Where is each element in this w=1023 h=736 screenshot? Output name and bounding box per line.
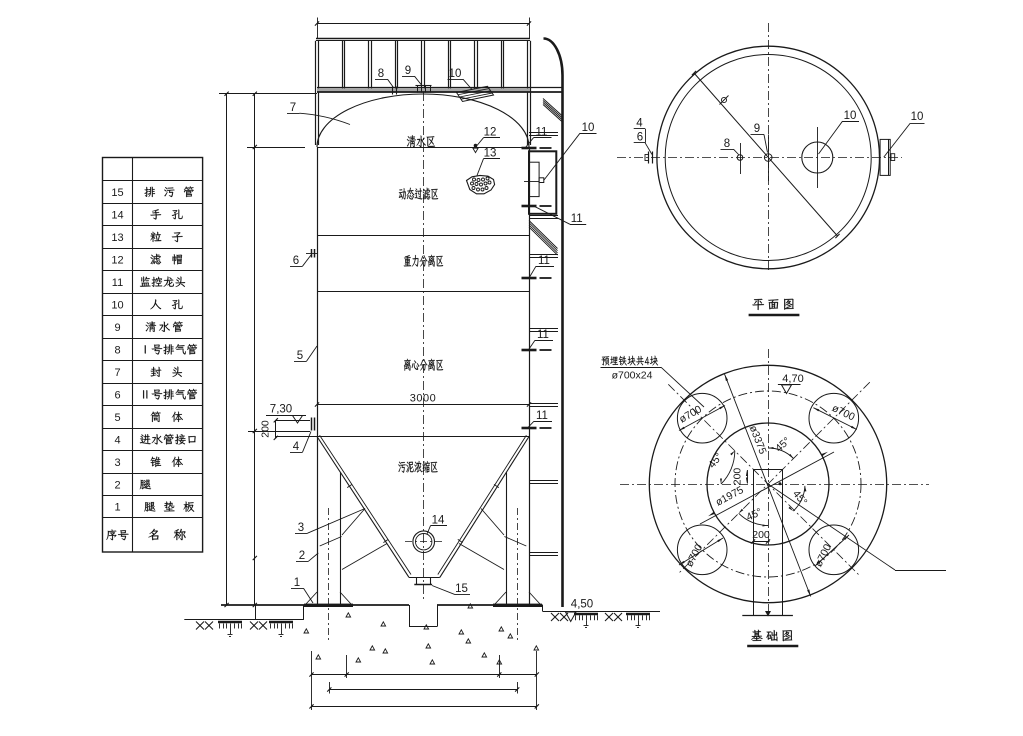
svg-text:13: 13 xyxy=(111,232,123,244)
svg-text:15: 15 xyxy=(455,583,468,595)
svg-text:3: 3 xyxy=(114,457,120,469)
svg-text:9: 9 xyxy=(754,123,760,135)
svg-text:10: 10 xyxy=(911,111,924,123)
svg-text:5: 5 xyxy=(114,412,120,424)
svg-text:8: 8 xyxy=(114,344,120,356)
svg-text:200: 200 xyxy=(260,420,272,438)
svg-text:11: 11 xyxy=(536,127,548,139)
svg-text:1: 1 xyxy=(294,577,300,589)
svg-text:2: 2 xyxy=(299,550,305,562)
svg-text:10: 10 xyxy=(111,299,123,311)
svg-text:6: 6 xyxy=(637,132,643,144)
svg-text:7: 7 xyxy=(290,102,296,114)
svg-text:6: 6 xyxy=(114,389,120,401)
svg-text:4,50: 4,50 xyxy=(571,599,593,611)
svg-text:4,70: 4,70 xyxy=(782,373,803,385)
svg-text:11: 11 xyxy=(112,277,123,289)
svg-text:2: 2 xyxy=(114,479,120,491)
svg-text:ø700x24: ø700x24 xyxy=(612,370,653,382)
svg-text:11: 11 xyxy=(536,410,548,422)
svg-text:4: 4 xyxy=(114,434,120,446)
svg-text:4: 4 xyxy=(636,118,643,130)
svg-text:10: 10 xyxy=(582,122,595,134)
svg-text:10: 10 xyxy=(844,110,857,122)
svg-text:5: 5 xyxy=(297,350,303,362)
svg-text:6: 6 xyxy=(293,255,299,267)
svg-text:9: 9 xyxy=(405,65,411,77)
svg-text:200: 200 xyxy=(752,529,770,541)
svg-text:7: 7 xyxy=(114,367,120,379)
svg-text:11: 11 xyxy=(537,329,549,341)
svg-text:13: 13 xyxy=(484,148,497,160)
svg-text:3: 3 xyxy=(298,522,304,534)
svg-text:4: 4 xyxy=(293,441,300,453)
svg-text:9: 9 xyxy=(114,322,120,334)
svg-text:8: 8 xyxy=(724,138,730,150)
svg-text:14: 14 xyxy=(111,209,123,221)
svg-text:1: 1 xyxy=(114,502,120,514)
svg-text:12: 12 xyxy=(111,254,123,266)
svg-text:3000: 3000 xyxy=(410,393,436,405)
svg-text:10: 10 xyxy=(449,68,462,80)
svg-text:8: 8 xyxy=(378,68,384,80)
svg-text:7,30: 7,30 xyxy=(270,404,292,416)
svg-text:11: 11 xyxy=(538,255,550,267)
svg-text:14: 14 xyxy=(432,515,445,527)
svg-text:15: 15 xyxy=(111,187,123,199)
svg-text:11: 11 xyxy=(571,213,583,225)
svg-text:200: 200 xyxy=(732,468,744,486)
svg-text:12: 12 xyxy=(484,127,497,139)
